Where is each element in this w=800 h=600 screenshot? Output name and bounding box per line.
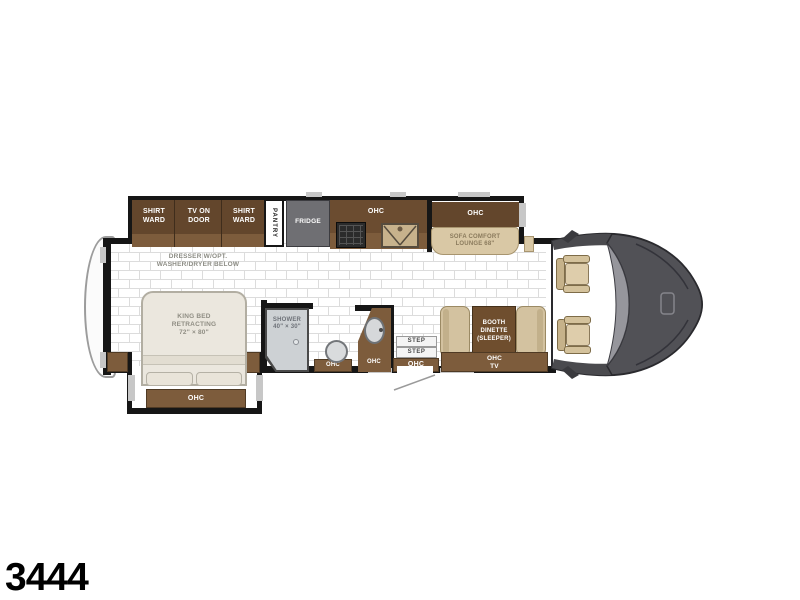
- step-lower-label: STEP: [396, 348, 437, 358]
- floorplan-canvas: SHIRT WARD TV ON DOOR SHIRT WARD PANTRY …: [0, 0, 800, 600]
- slide-rail-tab: [128, 375, 135, 401]
- tv-on-door-label: TV ON DOOR: [176, 205, 222, 229]
- pantry: PANTRY: [264, 199, 284, 247]
- bed-slideout-bottom-wall: [127, 408, 262, 414]
- sofa-label: SOFA COMFORT LOUNGE 68": [433, 231, 517, 251]
- shirt-wardrobe-left-label: SHIRT WARD: [133, 205, 175, 229]
- sink-basin-icon: [383, 225, 417, 246]
- shirt-wardrobe-right-label: SHIRT WARD: [223, 205, 265, 229]
- toilet: [325, 340, 348, 363]
- king-bed-label: KING BED RETRACTING 72" × 80": [151, 310, 237, 340]
- seat-armrest: [563, 285, 590, 293]
- passenger-seat: [557, 316, 595, 354]
- seat-cushion: [565, 263, 589, 285]
- driver-seat: [556, 255, 594, 293]
- shower-label: SHOWER 40" × 30": [266, 314, 308, 334]
- dinette-bench-left: [440, 306, 470, 357]
- dinette-ohc-label: OHC TV: [441, 353, 548, 372]
- vanity-faucet-icon: [379, 328, 383, 332]
- seat-armrest: [564, 346, 591, 354]
- bed-ohc-label: OHC: [146, 393, 246, 405]
- slide-rail-tab: [256, 375, 263, 401]
- slide-rail-tab: [390, 192, 406, 197]
- slide-rail-tab: [306, 192, 322, 197]
- slide-rail-tab: [519, 203, 526, 227]
- pillow: [146, 372, 193, 386]
- cabinet-face: [132, 234, 265, 247]
- entry-door-swing-icon: [388, 371, 440, 395]
- slide-rail-tab: [458, 192, 490, 197]
- bed-foot-band: [143, 355, 245, 365]
- bedside-cabinet: [107, 352, 128, 372]
- slide-rail-tab: [100, 352, 106, 368]
- shower-drain-icon: [293, 339, 299, 345]
- kitchen-ohc-label: OHC: [338, 206, 414, 218]
- fridge-label: FRIDGE: [286, 216, 330, 228]
- dresser-label: DRESSER W/OPT. WASHER/DRYER BELOW: [116, 251, 280, 271]
- cab-front: [542, 227, 712, 382]
- model-number: 3444: [5, 558, 88, 597]
- pantry-label: PANTRY: [271, 208, 277, 238]
- vanity-ohc-label: OHC: [358, 357, 390, 368]
- dinette-label: BOOTH DINETTE (SLEEPER): [472, 315, 516, 349]
- stove-burners: [339, 225, 363, 245]
- sofa-ohc-label: OHC: [432, 208, 519, 220]
- step-upper-label: STEP: [396, 337, 437, 347]
- dash-console: [524, 236, 534, 252]
- bench-backrest: [443, 309, 449, 354]
- slide-rail-tab: [100, 247, 106, 263]
- seat-armrest: [563, 255, 590, 263]
- kitchen-sink: [381, 223, 419, 248]
- seat-armrest: [564, 316, 591, 324]
- stove: [336, 222, 366, 248]
- seat-cushion: [566, 324, 590, 346]
- pillow: [196, 372, 242, 386]
